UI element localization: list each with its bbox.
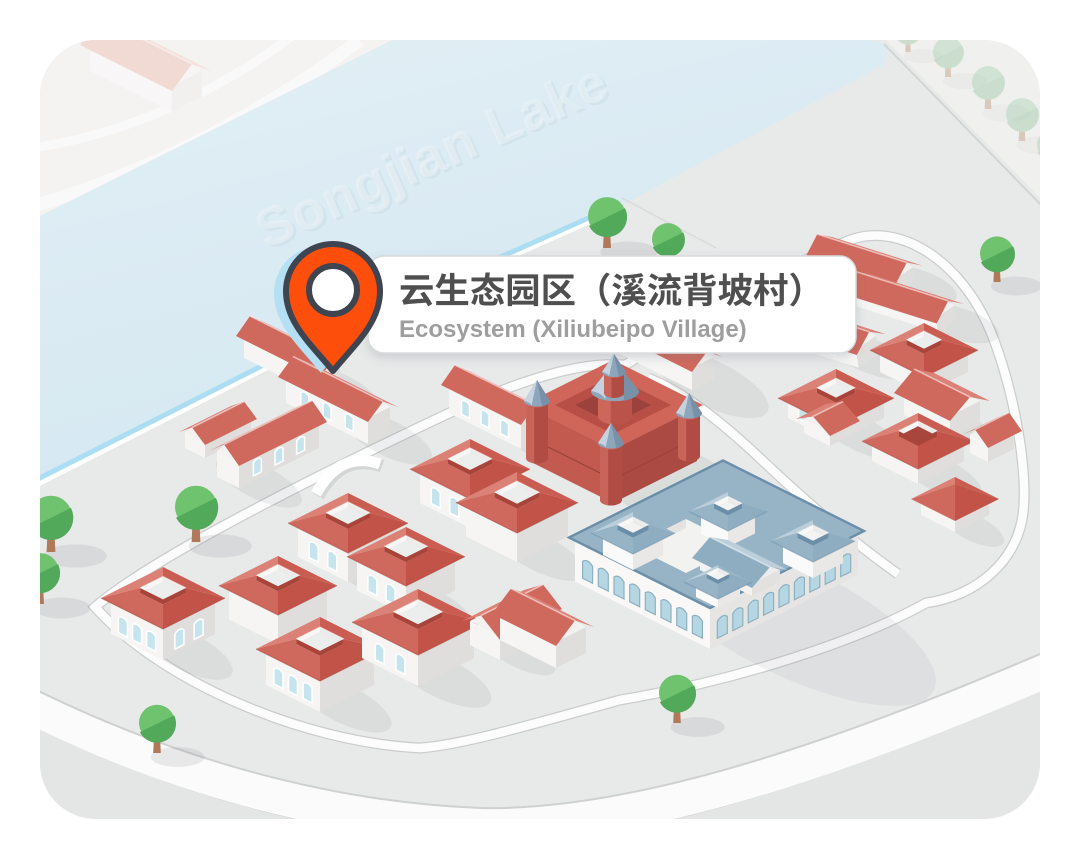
svg-text:Ecosystem (Xiliubeipo Village): Ecosystem (Xiliubeipo Village) (399, 316, 747, 343)
